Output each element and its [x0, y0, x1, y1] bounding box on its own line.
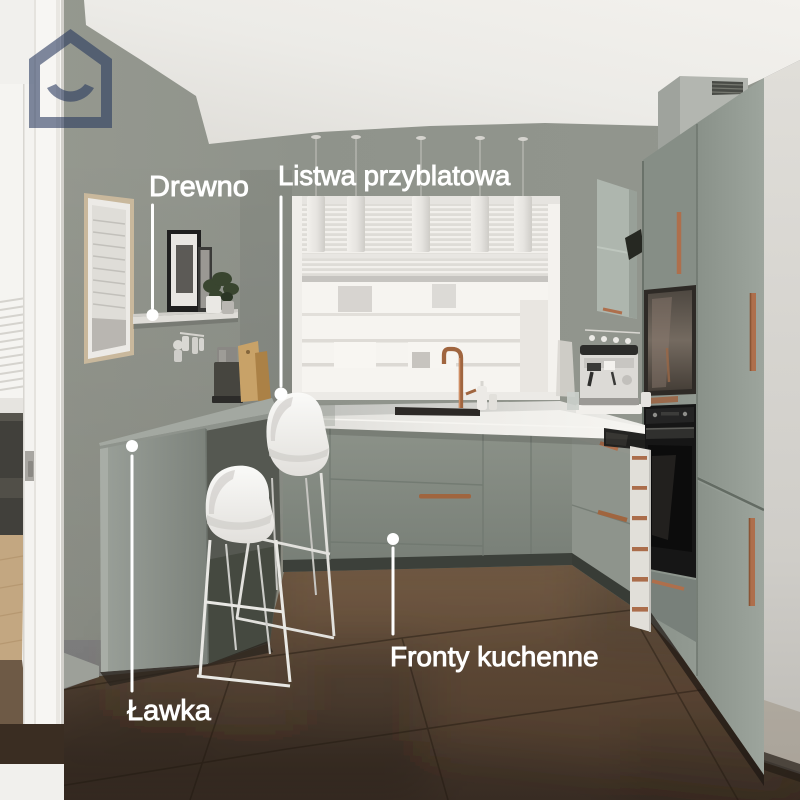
svg-text:Listwa przyblatowa: Listwa przyblatowa	[278, 160, 511, 191]
svg-text:Drewno: Drewno	[149, 171, 249, 203]
svg-text:Ławka: Ławka	[127, 695, 212, 727]
svg-text:Fronty kuchenne: Fronty kuchenne	[390, 641, 599, 672]
